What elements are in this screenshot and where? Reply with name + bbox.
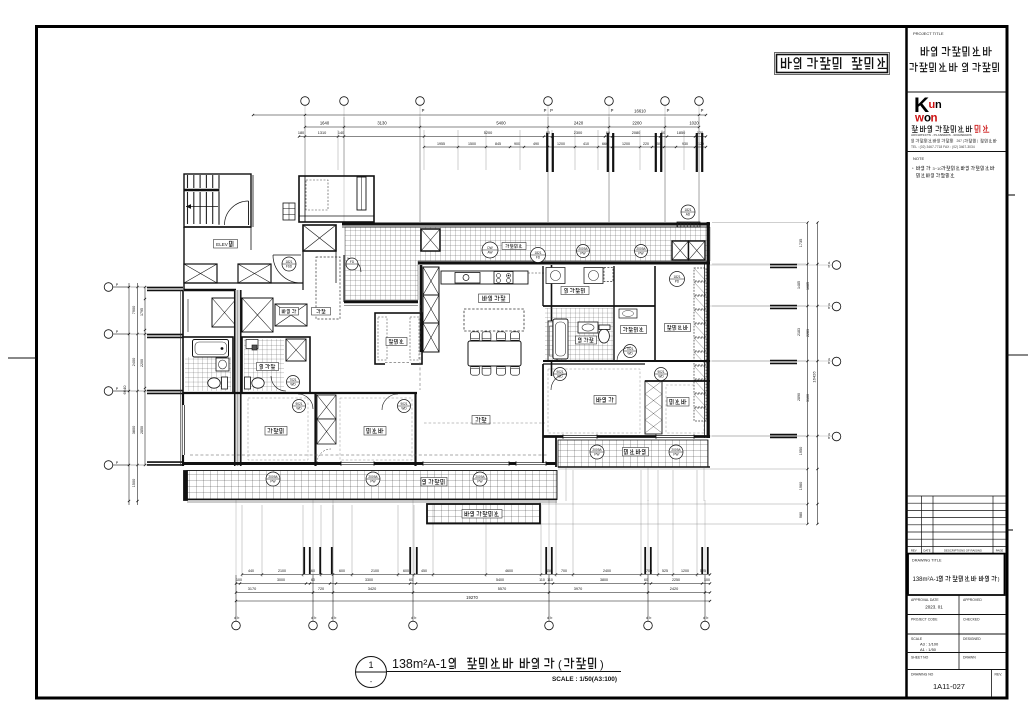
svg-text:845: 845 bbox=[495, 142, 501, 146]
svg-text:SHEET NO: SHEET NO bbox=[911, 656, 929, 660]
svg-text:1821: 1821 bbox=[684, 208, 691, 212]
svg-text:FD: FD bbox=[350, 260, 355, 264]
svg-text:2009A: 2009A bbox=[268, 475, 278, 479]
svg-text:2009A: 2009A bbox=[578, 247, 588, 251]
svg-text:2080: 2080 bbox=[632, 131, 640, 135]
svg-text:n: n bbox=[935, 99, 942, 111]
svg-text:P: P bbox=[667, 108, 670, 113]
svg-text:DRAWN: DRAWN bbox=[963, 656, 976, 660]
svg-text:600: 600 bbox=[403, 569, 409, 573]
svg-text:PD: PD bbox=[675, 279, 680, 283]
svg-text:1200: 1200 bbox=[557, 142, 565, 146]
svg-text:PW: PW bbox=[580, 251, 585, 255]
svg-text:410: 410 bbox=[583, 142, 589, 146]
svg-text:n: n bbox=[931, 113, 938, 125]
svg-text:WD: WD bbox=[401, 406, 407, 410]
svg-text:3100: 3100 bbox=[806, 394, 810, 402]
svg-text:A1 : 1/50: A1 : 1/50 bbox=[920, 647, 937, 652]
svg-text:1955: 1955 bbox=[437, 142, 445, 146]
svg-text:PROJECT CODE: PROJECT CODE bbox=[911, 618, 938, 622]
svg-text:7021: 7021 bbox=[289, 378, 296, 382]
svg-text:440: 440 bbox=[248, 569, 254, 573]
svg-text:1640: 1640 bbox=[320, 121, 330, 126]
svg-text:1960: 1960 bbox=[799, 482, 803, 490]
svg-text:2100: 2100 bbox=[371, 569, 379, 573]
svg-text:FSD: FSD bbox=[286, 264, 293, 268]
svg-text:2023. 01: 2023. 01 bbox=[925, 605, 943, 610]
svg-text:1200: 1200 bbox=[681, 569, 689, 573]
svg-text:NOTE: NOTE bbox=[913, 156, 924, 161]
svg-text:A3 : 1/100: A3 : 1/100 bbox=[920, 642, 939, 647]
svg-text:5400: 5400 bbox=[496, 121, 506, 126]
svg-text:b: b bbox=[828, 306, 830, 310]
svg-text:4600: 4600 bbox=[505, 569, 513, 573]
svg-text:2890: 2890 bbox=[797, 393, 801, 401]
svg-text:DRAWING NO: DRAWING NO bbox=[911, 673, 934, 677]
svg-text:w: w bbox=[914, 113, 924, 125]
svg-text:P: P bbox=[422, 108, 425, 113]
svg-text:b: b bbox=[237, 616, 239, 620]
svg-text:b: b bbox=[334, 616, 336, 620]
svg-text:1950: 1950 bbox=[799, 447, 803, 455]
svg-text:P: P bbox=[611, 108, 614, 113]
svg-text:d: d bbox=[411, 616, 413, 620]
svg-text:2250: 2250 bbox=[672, 578, 680, 582]
svg-text:ELEV: ELEV bbox=[216, 242, 229, 247]
svg-text:2850: 2850 bbox=[140, 426, 144, 434]
svg-text:d: d bbox=[547, 616, 549, 620]
svg-text:2400: 2400 bbox=[603, 569, 611, 573]
svg-text:900: 900 bbox=[514, 142, 520, 146]
svg-text:5400: 5400 bbox=[496, 578, 504, 582]
svg-text:110: 110 bbox=[539, 578, 545, 582]
svg-text:P: P bbox=[544, 108, 547, 113]
svg-text:b: b bbox=[314, 616, 316, 620]
svg-text:d: d bbox=[234, 616, 236, 620]
svg-text:16610: 16610 bbox=[634, 109, 646, 114]
svg-text:19270: 19270 bbox=[466, 595, 478, 600]
svg-text:138m²A-1: 138m²A-1 bbox=[392, 657, 447, 671]
svg-text:DATE: DATE bbox=[923, 549, 930, 553]
svg-text:6640: 6640 bbox=[122, 385, 127, 395]
svg-text:2200: 2200 bbox=[632, 121, 642, 126]
svg-text:1821: 1821 bbox=[673, 275, 680, 279]
svg-text:3800: 3800 bbox=[132, 426, 136, 434]
svg-text:): ) bbox=[977, 139, 978, 143]
svg-text:267 (: 267 ( bbox=[957, 139, 965, 143]
svg-text:9021: 9021 bbox=[556, 370, 563, 374]
svg-text:b: b bbox=[649, 616, 651, 620]
svg-text:d: d bbox=[646, 616, 648, 620]
svg-text:PW: PW bbox=[673, 452, 678, 456]
svg-text:SCALE: SCALE bbox=[911, 637, 923, 641]
svg-text:1A11-027: 1A11-027 bbox=[933, 682, 965, 691]
svg-text:3000: 3000 bbox=[277, 578, 285, 582]
svg-text:1020: 1020 bbox=[689, 121, 699, 126]
svg-text:1685: 1685 bbox=[806, 282, 810, 290]
svg-text:60: 60 bbox=[311, 578, 315, 582]
svg-text:d: d bbox=[331, 616, 333, 620]
svg-text:ARCHITECTS · PLANNERS · ENGINE: ARCHITECTS · PLANNERS · ENGINEERS bbox=[911, 133, 972, 137]
svg-text:110: 110 bbox=[547, 578, 553, 582]
svg-text:PW: PW bbox=[270, 479, 275, 483]
svg-text:5570: 5570 bbox=[498, 587, 506, 591]
svg-text:PW: PW bbox=[638, 251, 643, 255]
svg-text:3130: 3130 bbox=[377, 121, 387, 126]
svg-text:APPROVAL DATE: APPROVAL DATE bbox=[911, 598, 939, 602]
svg-text:2009A: 2009A bbox=[592, 448, 602, 452]
svg-text:9021: 9021 bbox=[657, 370, 664, 374]
svg-text:220: 220 bbox=[643, 142, 649, 146]
svg-text:2283: 2283 bbox=[806, 329, 810, 337]
svg-text:180: 180 bbox=[298, 131, 304, 135]
svg-text:1821: 1821 bbox=[285, 260, 292, 264]
svg-text:PAGE: PAGE bbox=[996, 549, 1004, 553]
svg-text:1500: 1500 bbox=[468, 142, 476, 146]
svg-text:PROJECT TITLE: PROJECT TITLE bbox=[913, 31, 944, 36]
svg-text:2183: 2183 bbox=[797, 328, 801, 336]
svg-text:DESCRIPTIONS OF RAISING: DESCRIPTIONS OF RAISING bbox=[944, 549, 982, 553]
svg-text:DRAWING TITLE: DRAWING TITLE bbox=[912, 559, 942, 563]
svg-text:1310: 1310 bbox=[318, 131, 326, 135]
svg-text:490: 490 bbox=[533, 142, 539, 146]
svg-text:DW: DW bbox=[487, 246, 492, 250]
svg-text:2100: 2100 bbox=[278, 569, 286, 573]
svg-text:3170: 3170 bbox=[248, 587, 256, 591]
svg-text:7900: 7900 bbox=[132, 306, 136, 314]
svg-text:16426: 16426 bbox=[812, 371, 817, 383]
svg-text:60: 60 bbox=[409, 578, 413, 582]
svg-text:9021: 9021 bbox=[295, 402, 302, 406]
svg-text:WD: WD bbox=[658, 374, 664, 378]
svg-text:b: b bbox=[828, 361, 830, 365]
svg-text:100: 100 bbox=[236, 578, 242, 582]
svg-text:AD: AD bbox=[686, 212, 691, 216]
svg-text:d: d bbox=[703, 616, 705, 620]
svg-text:b: b bbox=[550, 616, 552, 620]
svg-text:DESIGNED: DESIGNED bbox=[963, 637, 981, 641]
svg-text:2200: 2200 bbox=[140, 359, 144, 367]
svg-text:APPROVED: APPROVED bbox=[963, 598, 982, 602]
svg-text:980: 980 bbox=[799, 512, 803, 518]
svg-text:): ) bbox=[998, 577, 1000, 583]
svg-text:2009A: 2009A bbox=[368, 475, 378, 479]
svg-text:1500: 1500 bbox=[132, 479, 136, 487]
svg-text:b: b bbox=[706, 616, 708, 620]
svg-text:REV: REV bbox=[911, 549, 917, 553]
svg-text:600: 600 bbox=[339, 569, 345, 573]
svg-text:TEL : (02) 3467-7718 FAX : (02: TEL : (02) 3467-7718 FAX : (02) 3467-303… bbox=[911, 145, 975, 149]
svg-text:3970: 3970 bbox=[574, 587, 582, 591]
svg-text:2420: 2420 bbox=[574, 121, 584, 126]
svg-text:b: b bbox=[828, 265, 830, 269]
svg-text:3300: 3300 bbox=[365, 578, 373, 582]
svg-text:2009A: 2009A bbox=[636, 247, 646, 251]
svg-text:): ) bbox=[600, 659, 604, 671]
svg-text:PW: PW bbox=[477, 479, 482, 483]
svg-text:450: 450 bbox=[421, 569, 427, 573]
svg-text:SCALE : 1/50(A3:100): SCALE : 1/50(A3:100) bbox=[552, 676, 617, 683]
svg-text:1485: 1485 bbox=[797, 281, 801, 289]
svg-text:100: 100 bbox=[704, 578, 710, 582]
svg-text:PW: PW bbox=[370, 479, 375, 483]
svg-text:2400: 2400 bbox=[132, 358, 136, 366]
svg-text:b: b bbox=[828, 436, 830, 440]
svg-text:REV.: REV. bbox=[995, 673, 1003, 677]
svg-text:9021: 9021 bbox=[400, 402, 407, 406]
svg-text:(: ( bbox=[558, 659, 562, 671]
svg-text:1795: 1795 bbox=[140, 308, 144, 316]
svg-text:b: b bbox=[414, 616, 416, 620]
svg-text:1: 1 bbox=[368, 660, 373, 670]
svg-text:720: 720 bbox=[318, 587, 324, 591]
svg-text:3420: 3420 bbox=[368, 587, 376, 591]
svg-text:140: 140 bbox=[338, 131, 344, 135]
svg-text:60: 60 bbox=[644, 578, 648, 582]
svg-text:2009A: 2009A bbox=[671, 448, 681, 452]
svg-text:525: 525 bbox=[662, 569, 668, 573]
svg-text:PW: PW bbox=[594, 452, 599, 456]
svg-text:1735: 1735 bbox=[799, 239, 803, 247]
svg-text:3800: 3800 bbox=[600, 578, 608, 582]
svg-text:5200: 5200 bbox=[484, 131, 492, 135]
svg-text:FD: FD bbox=[536, 255, 541, 259]
svg-text:P: P bbox=[701, 108, 704, 113]
svg-text:3~10: 3~10 bbox=[933, 166, 943, 171]
svg-text:WD: WD bbox=[290, 382, 296, 386]
svg-text:1821: 1821 bbox=[534, 251, 541, 255]
svg-text:WD: WD bbox=[296, 406, 302, 410]
svg-text:2009A: 2009A bbox=[475, 475, 485, 479]
svg-text:700: 700 bbox=[561, 569, 567, 573]
svg-text:WD: WD bbox=[627, 351, 633, 355]
svg-text:2420: 2420 bbox=[670, 587, 678, 591]
svg-text:AW: AW bbox=[487, 250, 492, 254]
svg-text:138m²A-1: 138m²A-1 bbox=[913, 577, 940, 583]
svg-text:d: d bbox=[311, 616, 313, 620]
svg-text:930: 930 bbox=[682, 142, 688, 146]
svg-text:P: P bbox=[550, 108, 553, 113]
svg-text:CHECKED: CHECKED bbox=[963, 618, 980, 622]
svg-text:1200: 1200 bbox=[622, 142, 630, 146]
